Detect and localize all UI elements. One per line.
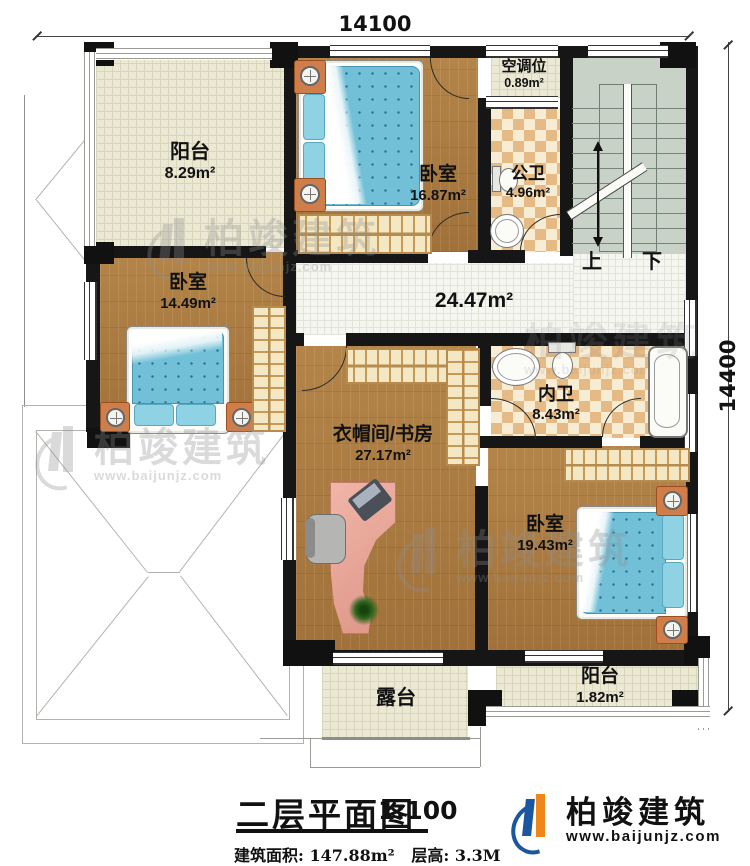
wall-segment <box>346 333 486 346</box>
brand-name: 柏竣建筑 <box>566 797 721 828</box>
brand-block: 柏竣建筑 www.baijunjz.com <box>512 794 721 848</box>
roof-edge-line <box>24 95 25 407</box>
watermark: 柏竣建筑 www.baijunjz.com <box>148 218 380 274</box>
terrace-shadow <box>322 737 470 740</box>
roof-slope-line <box>35 136 88 200</box>
watermark-url: www.baijunjz.com <box>94 468 270 483</box>
round-sink <box>490 214 524 248</box>
height-value: 3.3M <box>455 846 501 865</box>
lamp <box>300 66 320 86</box>
stairs-down-label: 下 <box>582 250 722 274</box>
roof-ridge-line <box>148 572 180 573</box>
room-label-study: 衣帽间/书房27.17m² <box>313 424 453 465</box>
bed-mattress <box>132 330 224 404</box>
room-label-bedroom-right: 卧室19.43m² <box>475 514 615 555</box>
roof-slope-line <box>36 200 89 265</box>
brand-watermark-icon <box>398 528 448 586</box>
terrace-door <box>333 652 443 665</box>
potted-plant <box>348 594 380 626</box>
wall-segment <box>468 250 478 263</box>
area-label: 建筑面积: <box>234 846 304 865</box>
dimension-top-value: 14100 <box>305 12 445 36</box>
chair-backrest <box>306 518 315 558</box>
watermark-name: 柏竣建筑 <box>524 322 700 362</box>
room-label-balcony-bottom: 阳台1.82m² <box>530 666 670 707</box>
brand-watermark-icon <box>36 426 86 484</box>
wall-segment <box>296 333 304 346</box>
room-label-terrace: 露台 <box>326 686 466 710</box>
balcony-railing <box>84 52 96 246</box>
dimension-line-top <box>36 36 690 37</box>
room-label-ensuite: 内卫8.43m² <box>486 384 626 424</box>
room-label-bedroom-left: 卧室14.49m² <box>118 272 258 313</box>
window <box>525 650 603 663</box>
watermark: 柏竣建筑 www.baijunjz.com <box>36 426 270 484</box>
room-label-ac-slot: 空调位0.89m² <box>454 58 594 91</box>
window <box>330 45 430 58</box>
column <box>283 640 335 666</box>
wall-segment <box>478 250 525 263</box>
window <box>281 498 294 560</box>
pillow <box>662 562 684 608</box>
drawing-scale: 1:100 <box>378 796 458 825</box>
stair-arrow-up <box>593 141 603 151</box>
title-underline <box>236 829 428 833</box>
height-label: 层高: <box>411 846 449 865</box>
watermark-url: www.baijunjz.com <box>524 362 700 377</box>
watermark-url: www.baijunjz.com <box>456 570 632 585</box>
window <box>84 282 97 360</box>
area-value: 147.88m² <box>310 846 395 865</box>
wardrobe <box>346 348 454 384</box>
window <box>486 45 558 58</box>
pillow <box>176 404 216 426</box>
lamp <box>663 491 682 510</box>
lamp <box>106 408 125 427</box>
building-info-line: 建筑面积: 147.88m² 层高: 3.3M <box>234 842 500 866</box>
balcony-railing <box>96 48 272 60</box>
brand-logo-icon <box>512 794 556 848</box>
brand-watermark-icon <box>148 218 196 274</box>
watermark-name: 柏竣建筑 <box>94 428 270 468</box>
pillow <box>134 404 174 426</box>
brand-url: www.baijunjz.com <box>566 828 721 845</box>
pillow <box>303 94 325 140</box>
room-label-balcony-top: 阳台8.29m² <box>120 140 260 183</box>
watermark-name: 柏竣建筑 <box>204 219 380 259</box>
stair-arrow-down <box>593 237 603 247</box>
window <box>486 96 558 109</box>
room-label-public-bath: 公卫4.96m² <box>458 164 598 201</box>
dimension-right-value: 14400 <box>716 306 740 446</box>
lamp <box>663 620 682 639</box>
terrace-edge-line <box>480 727 481 767</box>
room-label-hallway: 24.47m² <box>404 288 544 313</box>
floor-plan: 柏竣建筑 www.baijunjz.com 柏竣建筑 www.baijunjz.… <box>0 0 750 866</box>
window <box>588 45 668 58</box>
wardrobe <box>564 448 690 482</box>
lamp <box>232 408 251 427</box>
balcony-railing <box>486 706 710 728</box>
wardrobe <box>252 306 286 432</box>
terrace-edge-line <box>310 738 311 767</box>
terrace-edge-line <box>310 767 480 768</box>
lamp <box>300 184 320 204</box>
pillow <box>662 514 684 560</box>
